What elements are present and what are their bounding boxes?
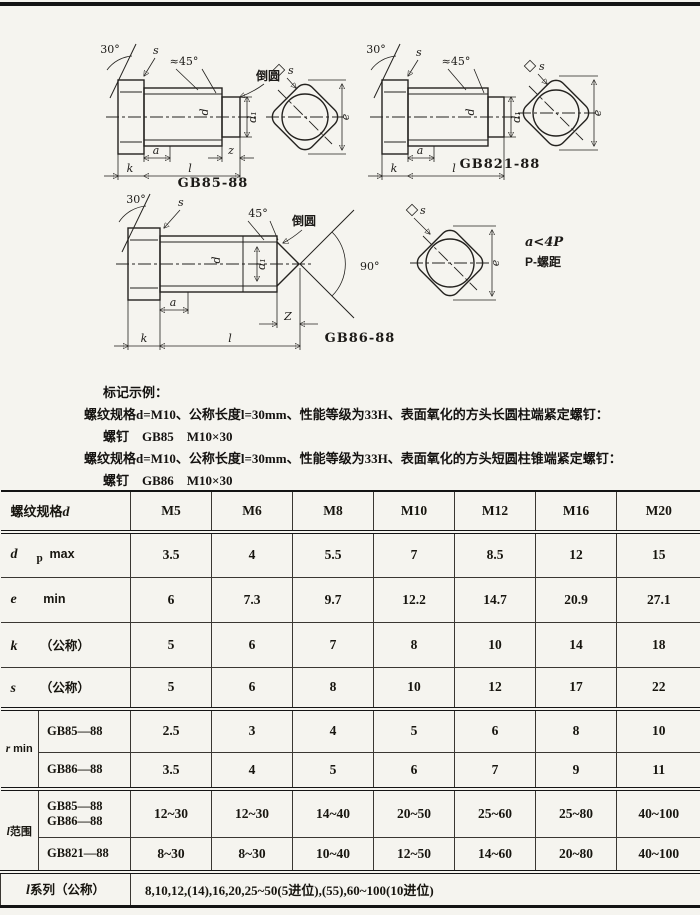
dim-l-label: l bbox=[228, 332, 232, 345]
marking-line: 螺纹规格d=M10、公称长度l=30mm、性能等级为33H、表面氧化的方头短圆柱… bbox=[84, 448, 622, 470]
dim-l-label: l bbox=[452, 162, 456, 175]
group-label-r-min: r min bbox=[1, 709, 39, 789]
cell: 20.9 bbox=[536, 577, 617, 622]
cell: 14~60 bbox=[455, 837, 536, 872]
cell: 3.5 bbox=[131, 532, 212, 577]
drawing-caption-gb86: GB86-88 bbox=[325, 331, 396, 346]
cell: 3 bbox=[212, 709, 293, 752]
angle-45-label: ≈45° bbox=[170, 55, 199, 68]
row-label: k （公称） bbox=[1, 622, 131, 667]
table-row-rmin-gb85: r min GB85—88 2.5 3 4 5 6 8 10 bbox=[1, 709, 700, 752]
table-row-s: s （公称） 5 6 8 10 12 17 22 bbox=[1, 667, 700, 709]
drawing-caption-gb821: GB821-88 bbox=[460, 157, 541, 172]
square-symbol bbox=[406, 204, 417, 215]
fillet-label: 倒圆 bbox=[255, 68, 280, 83]
cell: 4 bbox=[212, 532, 293, 577]
cell: 27.1 bbox=[617, 577, 700, 622]
dim-s-label: s bbox=[416, 46, 422, 59]
header-col: M10 bbox=[374, 491, 455, 532]
cell: 40~100 bbox=[617, 837, 700, 872]
cell: 6 bbox=[212, 667, 293, 709]
cell: 9.7 bbox=[293, 577, 374, 622]
cell: 6 bbox=[212, 622, 293, 667]
cell: 8 bbox=[374, 622, 455, 667]
cell: 25~80 bbox=[536, 789, 617, 837]
cell: 22 bbox=[617, 667, 700, 709]
cell: 17 bbox=[536, 667, 617, 709]
drawing-caption-gb85: GB85-88 bbox=[178, 176, 249, 190]
dimension-table: 螺纹规格d M5 M6 M8 M10 M12 M16 M20 dp max 3.… bbox=[0, 490, 700, 908]
table-row-e-min: e min 6 7.3 9.7 12.2 14.7 20.9 27.1 bbox=[1, 577, 700, 622]
angle-30-label: 30° bbox=[100, 43, 120, 56]
table-row-lrange-gb85-gb86: l范围 GB85—88GB86—88 12~30 12~30 14~40 20~… bbox=[1, 789, 700, 837]
header-col: M5 bbox=[131, 491, 212, 532]
table-row-lrange-gb821: GB821—88 8~30 8~30 10~40 12~50 14~60 20~… bbox=[1, 837, 700, 872]
cell: 8.5 bbox=[455, 532, 536, 577]
cell: 9 bbox=[536, 752, 617, 789]
scanned-standard-page: { "page": {"bg": "#f5f4ef", "ink": "#1f1… bbox=[0, 0, 700, 915]
angle-90-label: 90° bbox=[360, 260, 380, 273]
dim-d-label: d bbox=[198, 108, 211, 115]
cell: 12 bbox=[455, 667, 536, 709]
cell: 10 bbox=[455, 622, 536, 667]
marking-line: 螺纹规格d=M10、公称长度l=30mm、性能等级为33H、表面氧化的方头长圆柱… bbox=[84, 404, 609, 426]
marking-line: 螺钉 GB85 M10×30 bbox=[103, 426, 232, 448]
cell: 12~30 bbox=[131, 789, 212, 837]
dim-z-label: Z bbox=[283, 310, 292, 323]
cell: 2.5 bbox=[131, 709, 212, 752]
drawing-gb821-88: 30° s ≈45° d d₁ a k l s e GB821-88 bbox=[352, 40, 644, 190]
l-series-values: 8,10,12,(14),16,20,25~50(5进位),(55),60~10… bbox=[131, 872, 700, 906]
cell: 12 bbox=[536, 532, 617, 577]
dim-d-label: d bbox=[464, 108, 477, 115]
cell: 6 bbox=[455, 709, 536, 752]
dim-a-label: a bbox=[153, 144, 160, 157]
cell: 4 bbox=[293, 709, 374, 752]
cell: 6 bbox=[131, 577, 212, 622]
cell: 8~30 bbox=[131, 837, 212, 872]
header-col: M6 bbox=[212, 491, 293, 532]
cell: 5 bbox=[131, 622, 212, 667]
marking-title: 标记示例： bbox=[103, 382, 168, 404]
cell: 6 bbox=[374, 752, 455, 789]
table-header-row: 螺纹规格d M5 M6 M8 M10 M12 M16 M20 bbox=[1, 491, 700, 532]
angle-45-label: ≈45° bbox=[442, 55, 471, 68]
row-label: s （公称） bbox=[1, 667, 131, 709]
header-col: M12 bbox=[455, 491, 536, 532]
cell: 40~100 bbox=[617, 789, 700, 837]
cell: 7 bbox=[293, 622, 374, 667]
drawing-gb85-88: 30° s ≈45° 倒圆 d d₁ a z k l s e GB85-88 bbox=[80, 40, 352, 190]
dim-k-label: k bbox=[391, 162, 398, 175]
dim-s-square-label: s bbox=[288, 64, 294, 77]
header-thread-spec: 螺纹规格d bbox=[1, 491, 131, 532]
cell: 25~60 bbox=[455, 789, 536, 837]
row-label: e min bbox=[1, 577, 131, 622]
cell: 10 bbox=[617, 709, 700, 752]
cell: 10~40 bbox=[293, 837, 374, 872]
dim-z-label: z bbox=[227, 144, 234, 157]
sub-label: GB85—88 bbox=[39, 709, 131, 752]
cell: 5 bbox=[131, 667, 212, 709]
dim-k-label: k bbox=[141, 332, 148, 345]
sub-label: GB821—88 bbox=[39, 837, 131, 872]
header-col: M20 bbox=[617, 491, 700, 532]
cell: 18 bbox=[617, 622, 700, 667]
cell: 11 bbox=[617, 752, 700, 789]
cell: 12~30 bbox=[212, 789, 293, 837]
dim-e-label: e bbox=[489, 259, 502, 266]
dim-s-square-label: s bbox=[420, 204, 426, 217]
sub-label: GB86—88 bbox=[39, 752, 131, 789]
dim-e-label: e bbox=[591, 109, 604, 116]
cell: 14 bbox=[536, 622, 617, 667]
cell: 5 bbox=[293, 752, 374, 789]
dim-d-label: d bbox=[210, 256, 223, 263]
dim-a-label: a bbox=[417, 144, 424, 157]
row-label: dp max bbox=[1, 532, 131, 577]
dim-e-label: e bbox=[339, 113, 352, 120]
angle-30-label: 30° bbox=[366, 43, 386, 56]
table-row-k: k （公称） 5 6 7 8 10 14 18 bbox=[1, 622, 700, 667]
sub-label: GB85—88GB86—88 bbox=[39, 789, 131, 837]
cell: 20~80 bbox=[536, 837, 617, 872]
cell: 4 bbox=[212, 752, 293, 789]
cell: 14.7 bbox=[455, 577, 536, 622]
drawing-gb86-88: 30° s 45° 倒圆 90° d d₁ a Z k l GB86-88 s … bbox=[92, 190, 592, 362]
dim-s-label: s bbox=[153, 44, 159, 57]
cell: 15 bbox=[617, 532, 700, 577]
dim-d1-label: d₁ bbox=[246, 111, 259, 122]
cell: 14~40 bbox=[293, 789, 374, 837]
fillet-label: 倒圆 bbox=[291, 213, 316, 228]
angle-30-label: 30° bbox=[126, 193, 146, 206]
header-col: M16 bbox=[536, 491, 617, 532]
square-symbol bbox=[524, 60, 535, 71]
cell: 8 bbox=[293, 667, 374, 709]
cell: 8~30 bbox=[212, 837, 293, 872]
angle-45-label: 45° bbox=[248, 207, 268, 220]
cell: 7 bbox=[374, 532, 455, 577]
row-label-l-series: l系列（公称） bbox=[1, 872, 131, 906]
cell: 10 bbox=[374, 667, 455, 709]
cell: 8 bbox=[536, 709, 617, 752]
note-a-lt-4p: a<4P bbox=[525, 235, 564, 250]
cell: 12.2 bbox=[374, 577, 455, 622]
marking-line: 螺钉 GB86 M10×30 bbox=[103, 470, 232, 492]
cell: 7 bbox=[455, 752, 536, 789]
table-row-rmin-gb86: GB86—88 3.5 4 5 6 7 9 11 bbox=[1, 752, 700, 789]
note-p-pitch: P-螺距 bbox=[525, 254, 561, 269]
dim-s-label: s bbox=[178, 196, 184, 209]
dim-s-square-label: s bbox=[539, 60, 545, 73]
spec-table: 螺纹规格d M5 M6 M8 M10 M12 M16 M20 dp max 3.… bbox=[0, 490, 700, 908]
table-row-dp-max: dp max 3.5 4 5.5 7 8.5 12 15 bbox=[1, 532, 700, 577]
group-label-l-range: l范围 bbox=[1, 789, 39, 872]
page-top-rule bbox=[0, 2, 700, 6]
dim-a-label: a bbox=[170, 296, 177, 309]
dim-d1-label: d₁ bbox=[255, 258, 268, 269]
cell: 5 bbox=[374, 709, 455, 752]
table-row-l-series: l系列（公称） 8,10,12,(14),16,20,25~50(5进位),(5… bbox=[1, 872, 700, 906]
cell: 7.3 bbox=[212, 577, 293, 622]
header-col: M8 bbox=[293, 491, 374, 532]
cell: 3.5 bbox=[131, 752, 212, 789]
cell: 5.5 bbox=[293, 532, 374, 577]
cell: 20~50 bbox=[374, 789, 455, 837]
cell: 12~50 bbox=[374, 837, 455, 872]
dim-l-label: l bbox=[188, 162, 192, 175]
dim-k-label: k bbox=[127, 162, 134, 175]
